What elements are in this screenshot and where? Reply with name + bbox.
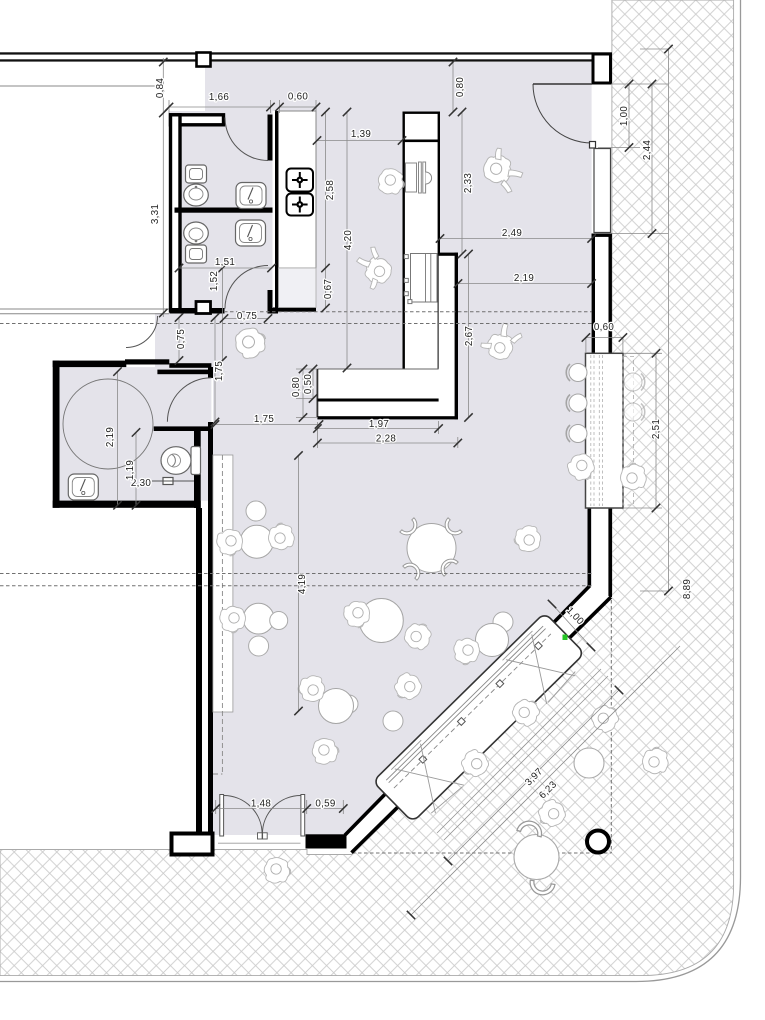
svg-text:2,58: 2,58 bbox=[325, 180, 336, 201]
svg-text:0,80: 0,80 bbox=[291, 377, 302, 398]
svg-text:0,67: 0,67 bbox=[323, 279, 334, 299]
svg-text:1,66: 1,66 bbox=[209, 92, 230, 103]
svg-text:1,19: 1,19 bbox=[125, 460, 136, 480]
svg-text:1,48: 1,48 bbox=[251, 798, 272, 809]
svg-text:0,75: 0,75 bbox=[176, 329, 187, 350]
svg-text:2,28: 2,28 bbox=[376, 434, 397, 445]
svg-text:2,19: 2,19 bbox=[105, 427, 116, 447]
svg-text:1,39: 1,39 bbox=[351, 129, 371, 140]
svg-text:0,60: 0,60 bbox=[288, 92, 309, 103]
svg-text:0,84: 0,84 bbox=[155, 78, 166, 99]
svg-text:0,50: 0,50 bbox=[303, 374, 314, 395]
svg-text:2,51: 2,51 bbox=[651, 419, 662, 439]
svg-text:0,60: 0,60 bbox=[594, 322, 615, 333]
svg-text:1,52: 1,52 bbox=[209, 271, 220, 291]
svg-text:0,80: 0,80 bbox=[455, 77, 466, 98]
svg-text:2,33: 2,33 bbox=[463, 173, 474, 194]
svg-text:1,51: 1,51 bbox=[215, 257, 235, 268]
svg-text:1,75: 1,75 bbox=[254, 414, 275, 425]
svg-text:4,19: 4,19 bbox=[297, 574, 308, 594]
svg-text:1,00: 1,00 bbox=[619, 106, 630, 127]
svg-text:0,59: 0,59 bbox=[315, 798, 335, 809]
svg-text:3,31: 3,31 bbox=[150, 204, 161, 224]
svg-text:2,49: 2,49 bbox=[502, 228, 522, 239]
svg-text:1,75: 1,75 bbox=[214, 361, 225, 382]
svg-text:0,75: 0,75 bbox=[237, 311, 258, 322]
svg-text:4,20: 4,20 bbox=[343, 230, 354, 251]
svg-text:8,89: 8,89 bbox=[682, 579, 693, 599]
svg-text:2,19: 2,19 bbox=[514, 273, 534, 284]
svg-text:2,44: 2,44 bbox=[642, 140, 653, 161]
svg-text:2,67: 2,67 bbox=[464, 326, 475, 346]
svg-text:1,97: 1,97 bbox=[369, 419, 389, 430]
